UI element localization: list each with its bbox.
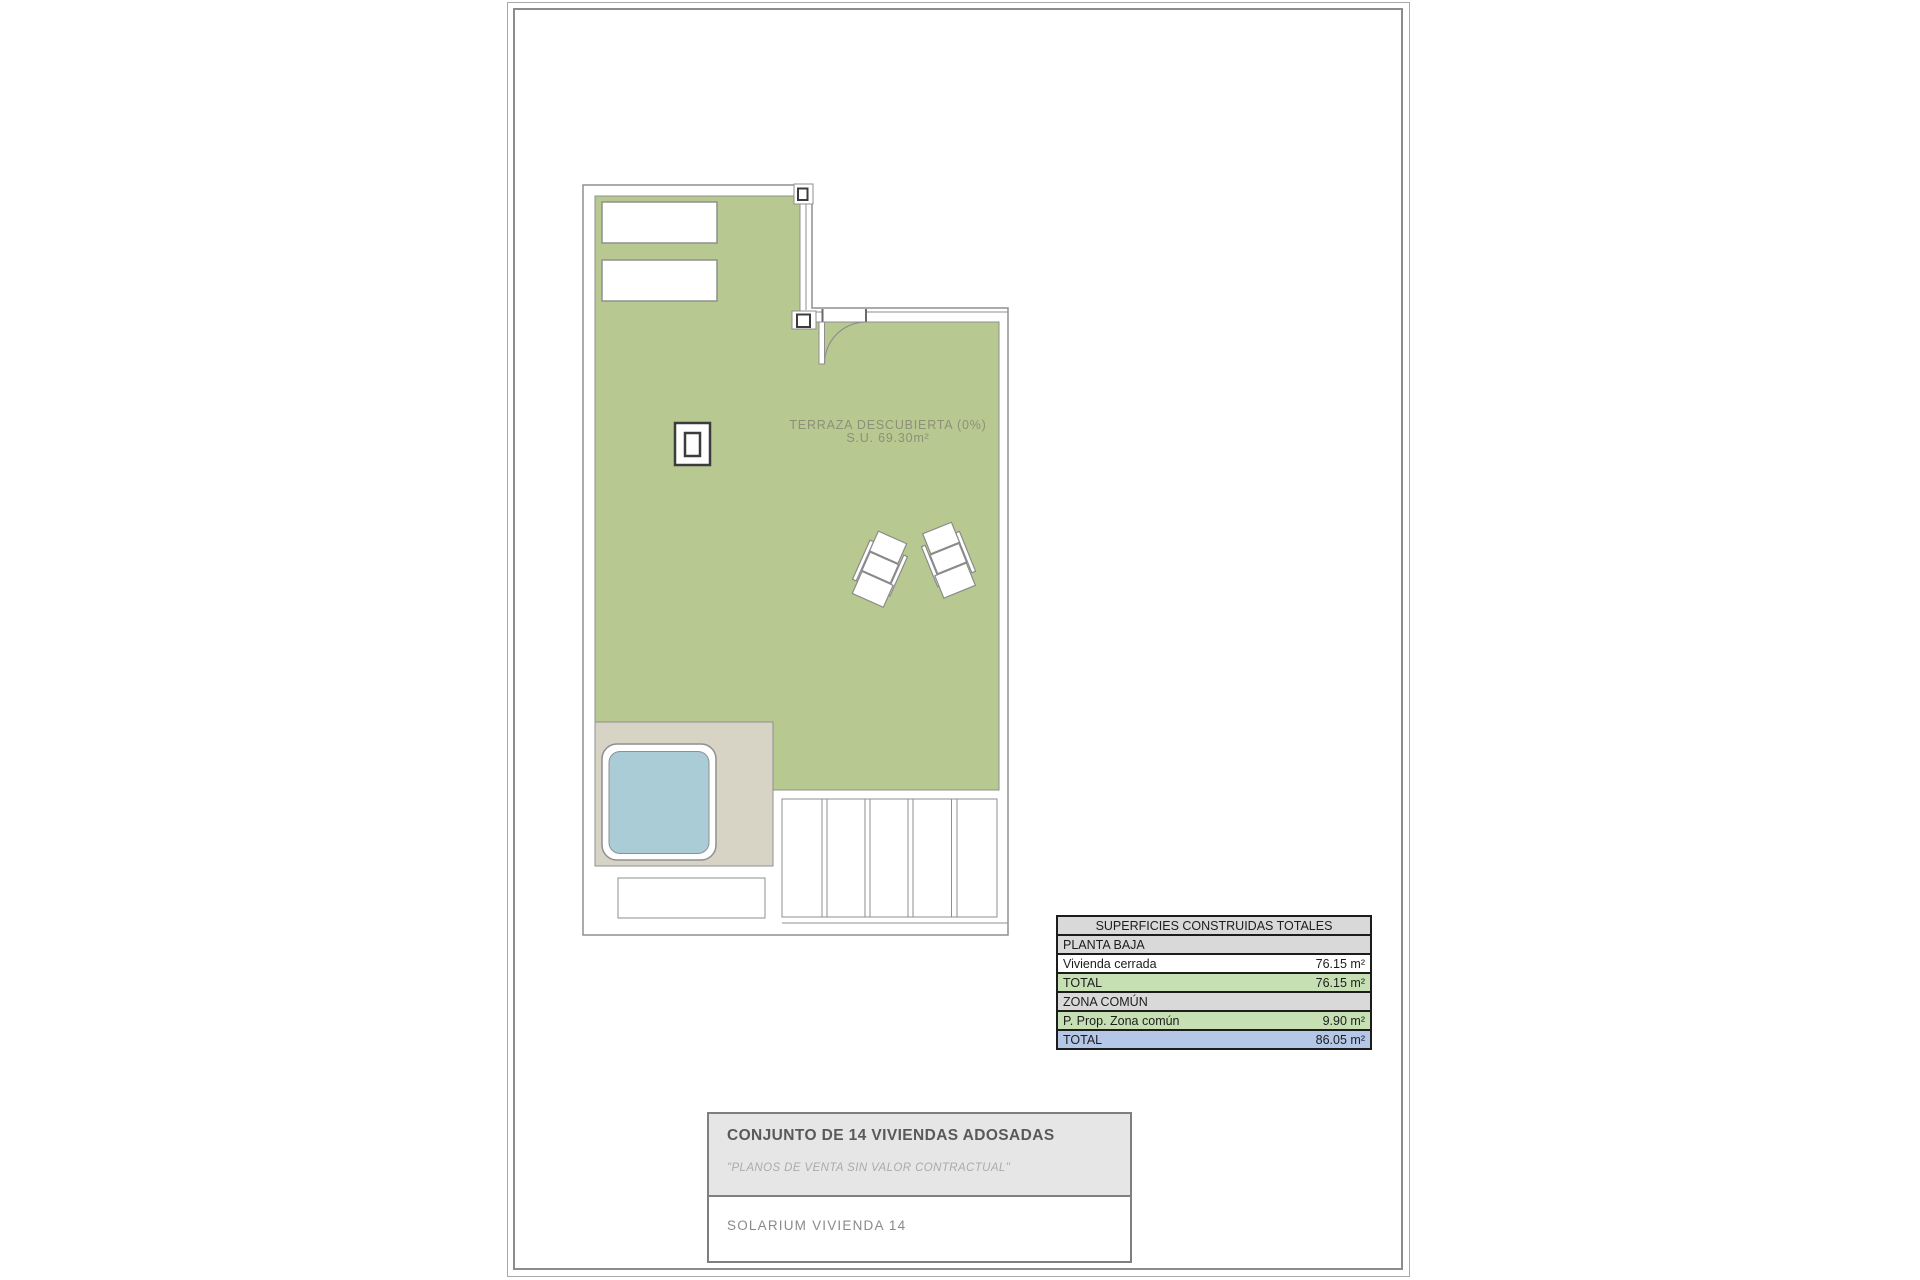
floor-plan: TERRAZA DESCUBIERTA (0%) S.U. 69.30m²	[555, 155, 1035, 965]
terrace-label-line1: TERRAZA DESCUBIERTA (0%)	[789, 418, 986, 432]
disclaimer-text: "PLANOS DE VENTA SIN VALOR CONTRACTUAL"	[727, 1162, 1112, 1174]
planter-box	[618, 878, 765, 918]
stairs	[782, 799, 1008, 923]
pool-water	[609, 752, 709, 854]
sheet: TERRAZA DESCUBIERTA (0%) S.U. 69.30m² SU…	[0, 0, 1920, 1280]
pillar	[794, 184, 813, 204]
title-block: CONJUNTO DE 14 VIVIENDAS ADOSADAS "PLANO…	[707, 1112, 1132, 1263]
row-value: 76.15 m²	[1316, 976, 1365, 990]
row-value: 86.05 m²	[1316, 1033, 1365, 1047]
row-label: ZONA COMÚN	[1063, 995, 1148, 1009]
terrace-label-line2: S.U. 69.30m²	[846, 431, 929, 445]
planter-box	[602, 260, 717, 301]
row-label: Vivienda cerrada	[1063, 957, 1157, 971]
row-label: PLANTA BAJA	[1063, 938, 1145, 952]
surfaces-table-title: SUPERFICIES CONSTRUIDAS TOTALES	[1096, 919, 1333, 933]
table-row: ZONA COMÚN	[1058, 993, 1370, 1012]
drawing-title: SOLARIUM VIVIENDA 14	[727, 1218, 1112, 1233]
planter-box	[602, 202, 717, 243]
table-row: TOTAL 76.15 m²	[1058, 974, 1370, 993]
row-label: TOTAL	[1063, 976, 1102, 990]
row-value: 76.15 m²	[1316, 957, 1365, 971]
row-label: P. Prop. Zona común	[1063, 1014, 1180, 1028]
surfaces-table: SUPERFICIES CONSTRUIDAS TOTALES PLANTA B…	[1056, 915, 1372, 1050]
table-row: PLANTA BAJA	[1058, 936, 1370, 955]
row-value: 9.90 m²	[1323, 1014, 1365, 1028]
table-row: TOTAL 86.05 m²	[1058, 1031, 1370, 1048]
pillar	[792, 311, 816, 329]
table-row: P. Prop. Zona común 9.90 m²	[1058, 1012, 1370, 1031]
project-title: CONJUNTO DE 14 VIVIENDAS ADOSADAS	[727, 1127, 1112, 1145]
title-block-header: CONJUNTO DE 14 VIVIENDAS ADOSADAS "PLANO…	[709, 1114, 1130, 1197]
skylight	[675, 423, 710, 465]
table-row: Vivienda cerrada 76.15 m²	[1058, 955, 1370, 974]
title-block-body: SOLARIUM VIVIENDA 14	[709, 1197, 1130, 1233]
row-label: TOTAL	[1063, 1033, 1102, 1047]
surfaces-table-header: SUPERFICIES CONSTRUIDAS TOTALES	[1058, 917, 1370, 936]
